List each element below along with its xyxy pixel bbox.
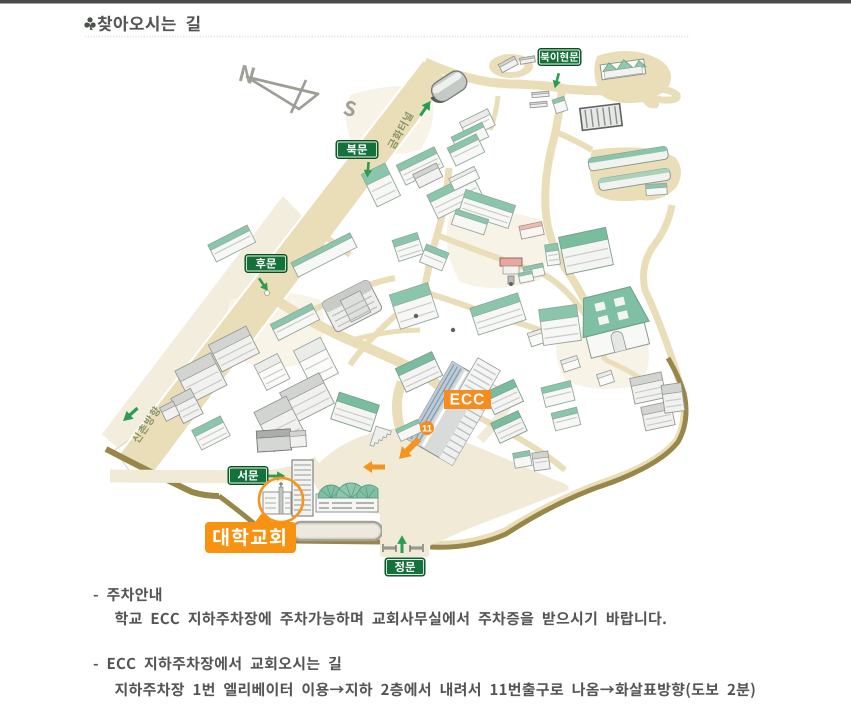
svg-text:11: 11: [422, 424, 433, 435]
svg-text:ECC: ECC: [450, 392, 486, 409]
